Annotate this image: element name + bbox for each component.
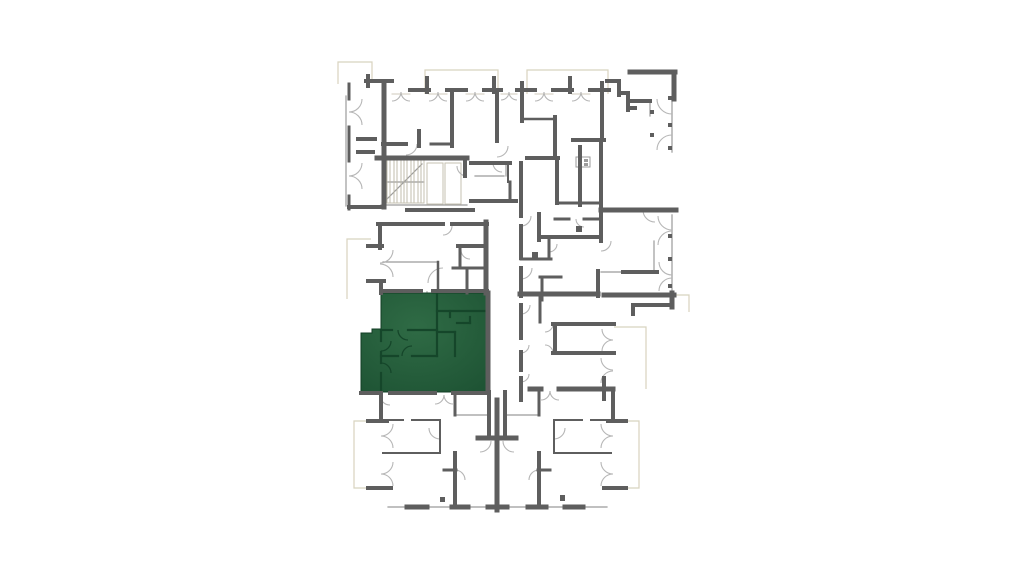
floor-plan-page	[0, 0, 1024, 576]
floor-plan	[0, 0, 1024, 576]
highlighted-unit[interactable]	[361, 293, 486, 392]
